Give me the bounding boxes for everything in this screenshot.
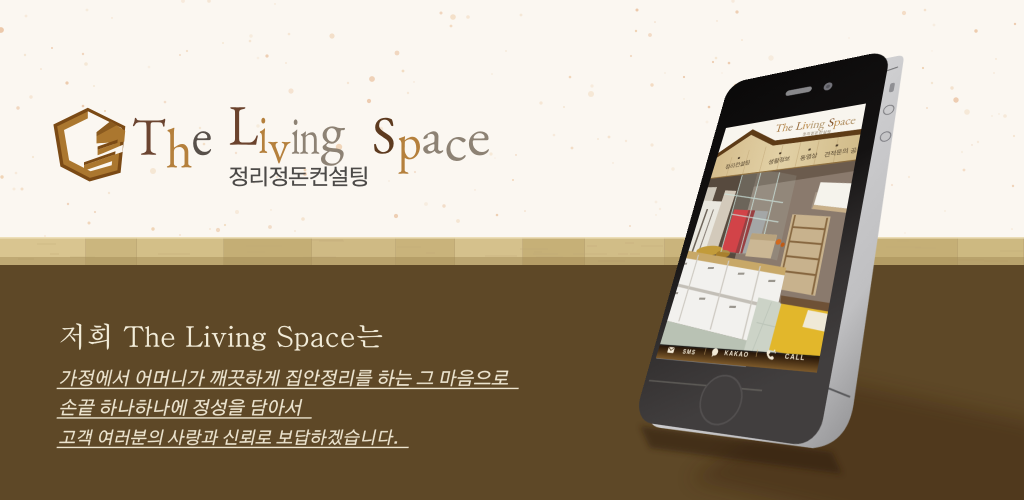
svg-text:SMS: SMS [682,347,697,356]
svg-text:CALL: CALL [784,352,806,362]
